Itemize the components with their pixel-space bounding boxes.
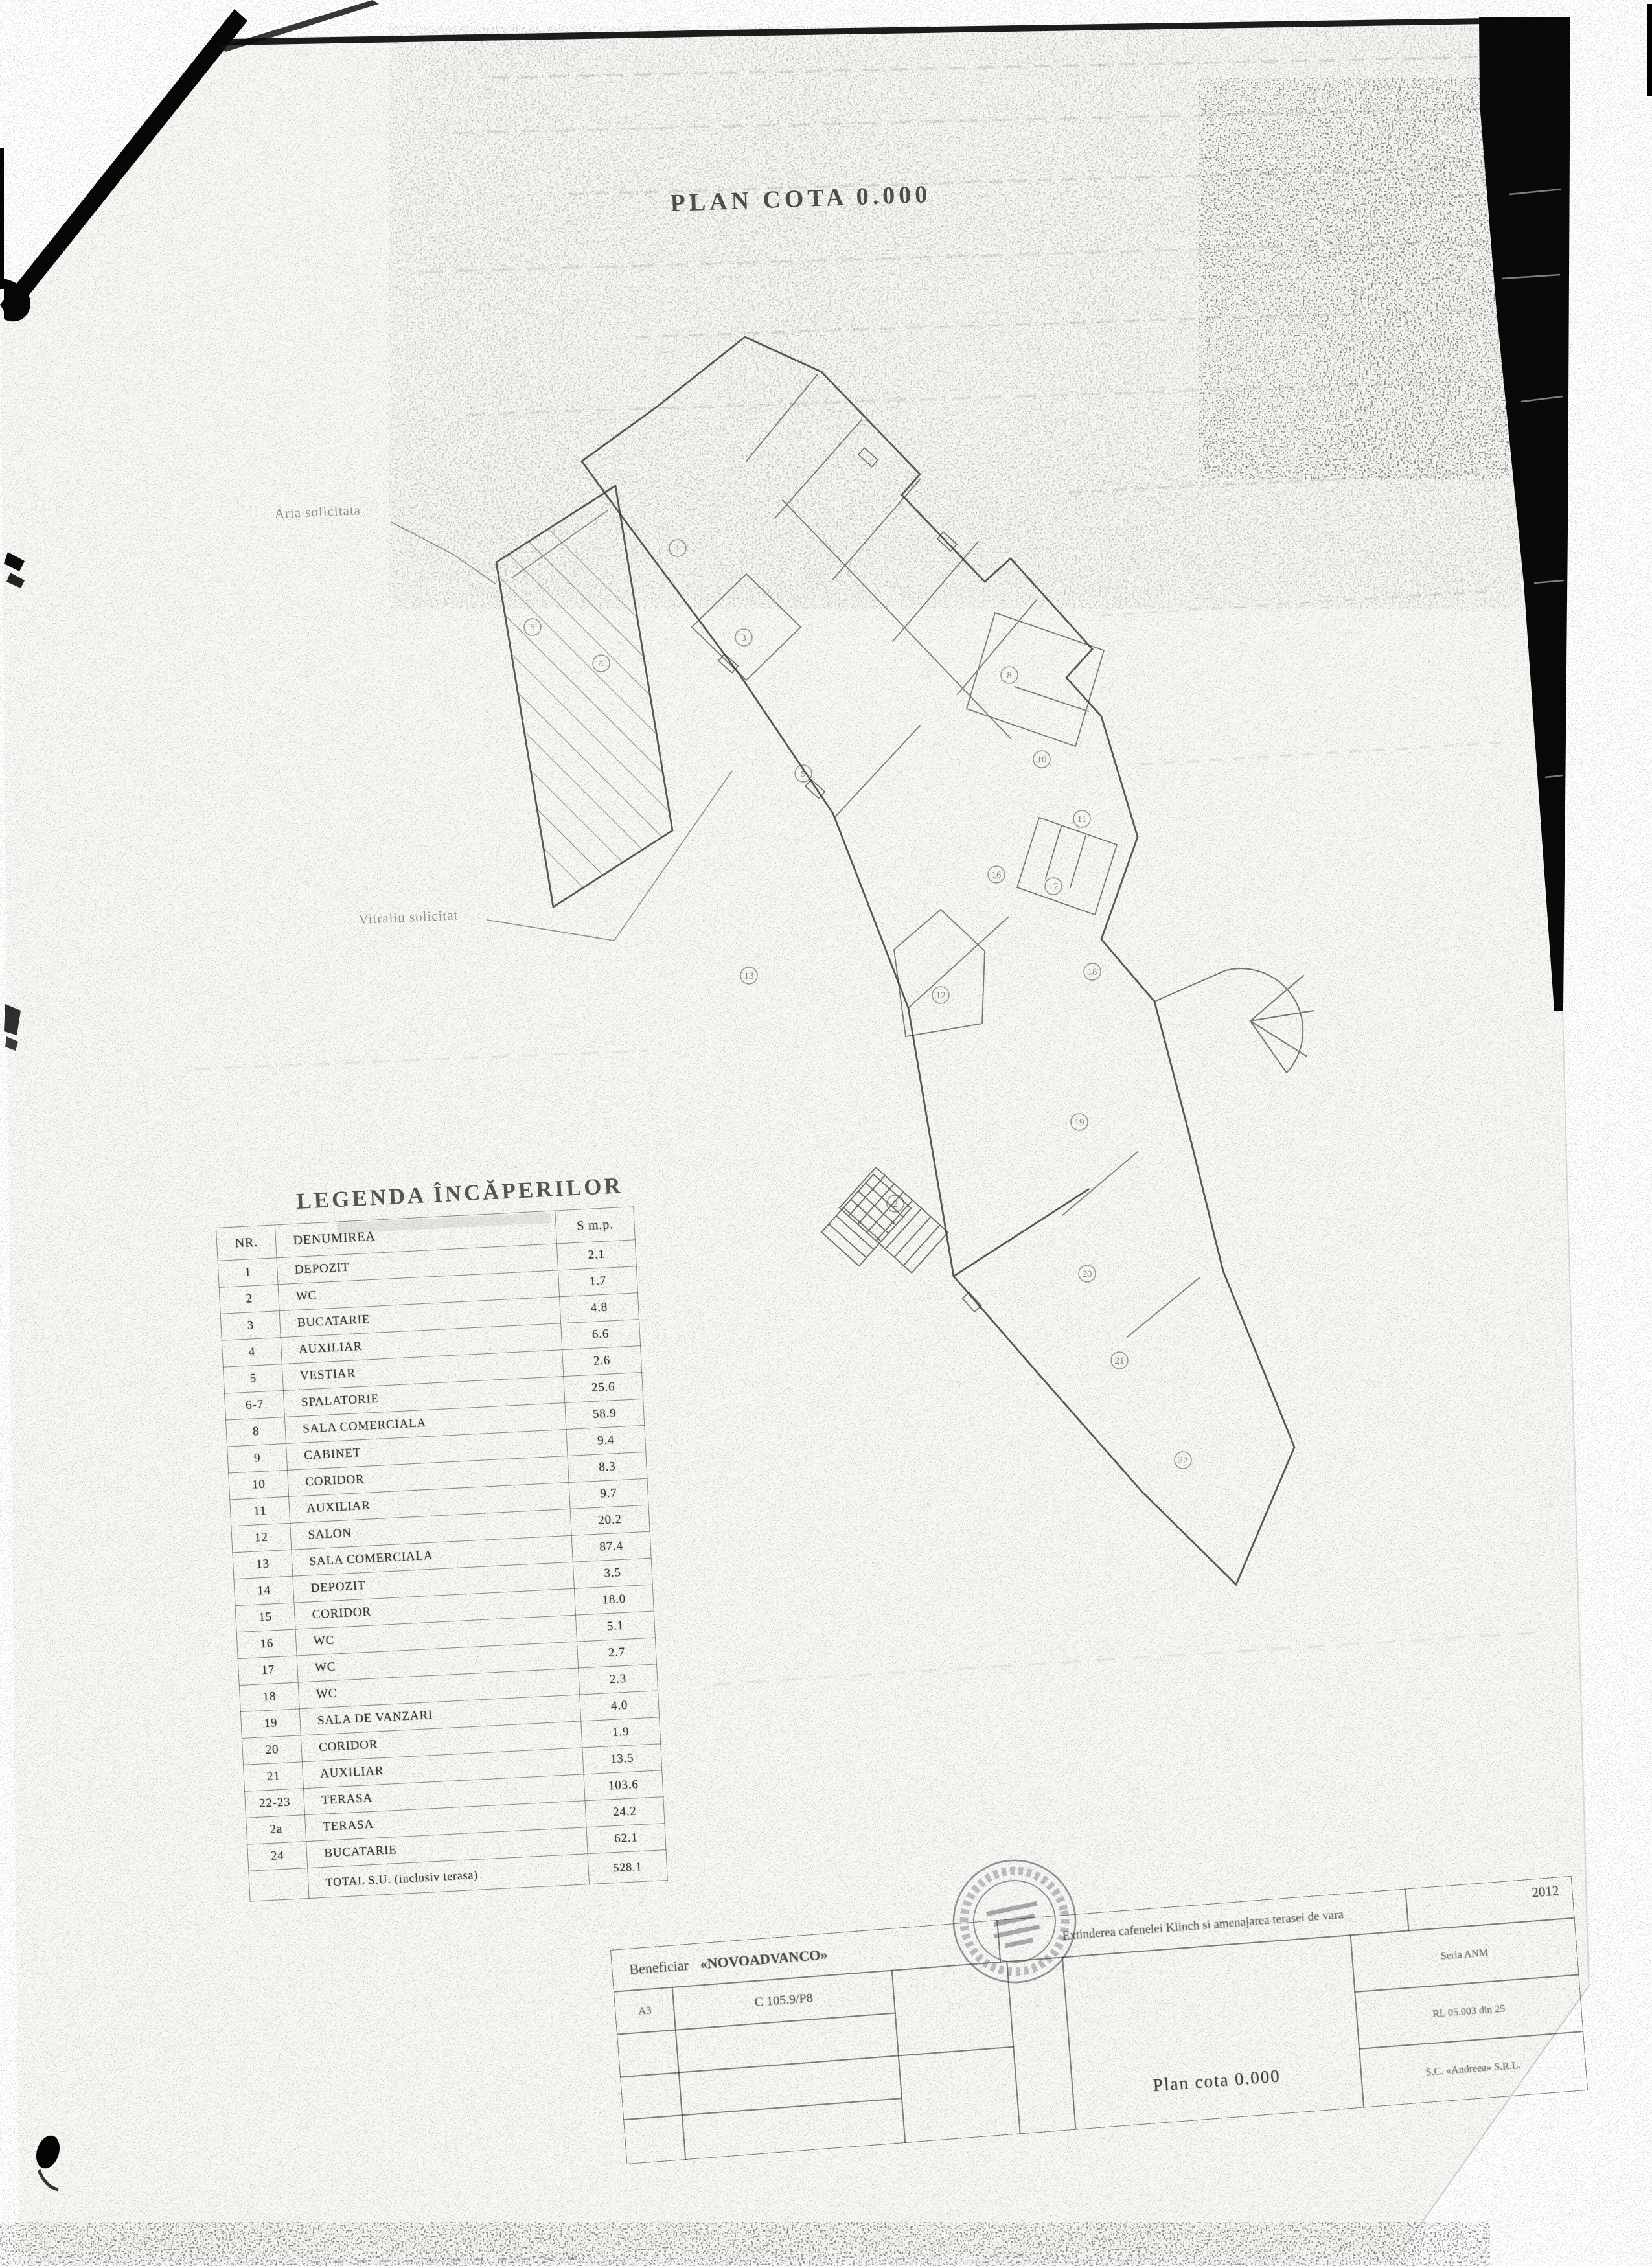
svg-text:20: 20 [1083, 1269, 1092, 1279]
legend-cell-nr: 9 [227, 1443, 288, 1473]
svg-text:11: 11 [1077, 814, 1086, 825]
sheet-code: C 105.9/P8 [754, 1991, 814, 2010]
legend-cell-nr: 2 [219, 1285, 279, 1314]
svg-text:10: 10 [1037, 755, 1047, 765]
svg-text:4: 4 [599, 659, 604, 669]
legend-table: NR. DENUMIREA S m.p. 1DEPOZIT2.1 2WC1.7 … [216, 1206, 668, 1901]
empty-cell [898, 2046, 1021, 2143]
legend-cell-area: 18.0 [574, 1585, 654, 1615]
scan-noise-bottom-edge [0, 2222, 1490, 2266]
legend-cell-area: 4.0 [580, 1691, 660, 1721]
legend-cell-nr: 2a [246, 1815, 306, 1845]
legend-cell-nr: 17 [238, 1656, 298, 1686]
signature-cell [617, 2030, 680, 2078]
svg-text:13: 13 [744, 971, 754, 981]
legend-cell-nr: 4 [222, 1338, 282, 1368]
left-edge-strip [0, 148, 4, 289]
legend-cell-nr: 22-23 [245, 1789, 305, 1818]
legend-total-value: 528.1 [588, 1850, 667, 1884]
svg-text:18: 18 [1088, 967, 1097, 978]
legend-cell-nr: 12 [231, 1523, 292, 1553]
svg-text:1: 1 [675, 544, 680, 554]
legend-cell-area: 4.8 [560, 1293, 639, 1323]
svg-text:17: 17 [1049, 882, 1059, 892]
scanned-page: PLAN COTA 0.000 [0, 0, 1652, 2266]
legend-cell-area: 103.6 [584, 1770, 663, 1801]
legend-cell-area: 25.6 [564, 1373, 643, 1403]
legend-cell-area: 5.1 [575, 1611, 655, 1642]
project-year: 2012 [1531, 1883, 1559, 1901]
legend-cell-nr: 11 [230, 1496, 290, 1526]
sheet-format: A3 [637, 2004, 652, 2018]
legend-cell-nr: 13 [233, 1550, 293, 1579]
beneficiary-label: Beneficiar [628, 1957, 689, 1978]
legend-cell-area: 1.7 [558, 1266, 637, 1297]
legend-cell-nr: 18 [239, 1682, 299, 1712]
legend-cell-area: 2.6 [562, 1346, 642, 1377]
legend-cell-nr: 1 [218, 1258, 278, 1288]
legend-col-area: S m.p. [555, 1207, 636, 1244]
legend-cell-nr: 24 [247, 1842, 308, 1871]
legend-cell-area: 24.2 [585, 1797, 665, 1827]
license-text: RL 05.003 din 25 [1432, 2003, 1506, 2020]
svg-text:22: 22 [1178, 1456, 1188, 1466]
signature-cell [620, 2072, 683, 2120]
svg-text:9: 9 [801, 769, 806, 779]
legend-cell-area: 6.6 [561, 1320, 641, 1350]
legend-cell-nr: 15 [235, 1603, 295, 1632]
legend-cell-nr: 8 [226, 1417, 286, 1447]
legend-cell-nr: 10 [229, 1470, 289, 1500]
svg-text:21: 21 [1115, 1356, 1125, 1366]
firm-text: S.C. «Andreea» S.R.L. [1425, 2060, 1521, 2079]
legend-cell-nr: 21 [244, 1762, 304, 1792]
legend-cell-nr: 19 [240, 1709, 301, 1739]
empty-cell [891, 1961, 1015, 2056]
right-edge-bar [1647, 4, 1652, 96]
legend-cell-area: 8.3 [568, 1452, 647, 1482]
drawing-title: Plan cota 0.000 [1153, 2066, 1281, 2096]
svg-text:5: 5 [530, 623, 535, 633]
legend-cell-area: 1.9 [581, 1717, 661, 1748]
svg-text:3: 3 [741, 633, 746, 643]
legend-cell-nr: 5 [223, 1364, 283, 1394]
drawing-title-cell: Plan cota 0.000 [1062, 1934, 1364, 2130]
legend-cell-area: 87.4 [571, 1531, 651, 1562]
legend-cell-area: 2.1 [556, 1240, 636, 1270]
legend-cell-nr: 20 [242, 1735, 302, 1765]
legend-cell-area: 2.3 [579, 1664, 658, 1695]
beneficiary-name: «NOVOADVANCO» [700, 1946, 829, 1973]
format-cell: A3 [614, 1987, 676, 2035]
svg-text:19: 19 [1075, 1117, 1084, 1128]
legend-cell-area: 62.1 [586, 1824, 666, 1854]
legend-cell-nr: 6-7 [224, 1391, 284, 1421]
legend-cell-area: 9.7 [569, 1478, 648, 1509]
legend-col-nr: NR. [216, 1225, 277, 1261]
legend-cell-nr: 14 [234, 1576, 294, 1606]
svg-text:12: 12 [936, 990, 946, 1001]
signature-cell [623, 2114, 686, 2164]
legend-cell-area: 2.7 [577, 1638, 656, 1668]
legend-cell-area: 3.5 [573, 1558, 652, 1588]
svg-text:2: 2 [893, 1199, 898, 1209]
series-text: Seria ANM [1440, 1947, 1488, 1963]
svg-text:8: 8 [1007, 670, 1012, 681]
legend-total-nr [249, 1868, 310, 1902]
legend-cell-nr: 3 [220, 1311, 281, 1341]
legend-cell-nr: 16 [236, 1629, 297, 1659]
legend-cell-area: 58.9 [565, 1399, 645, 1429]
legend-cell-area: 20.2 [570, 1505, 650, 1535]
scan-noise-cluster-topright [1199, 78, 1509, 479]
legend-cell-area: 13.5 [582, 1744, 662, 1774]
legend-cell-area: 9.4 [566, 1425, 646, 1456]
svg-text:16: 16 [992, 870, 1002, 880]
